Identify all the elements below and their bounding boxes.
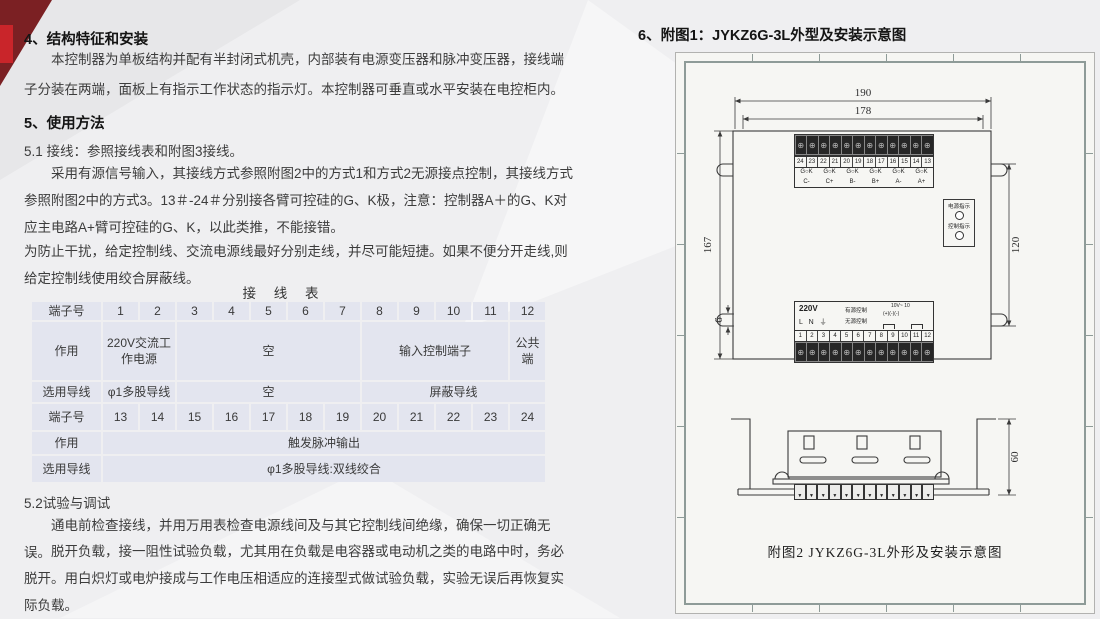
terminal-screw: ⊕ — [807, 136, 818, 154]
control-led-icon — [955, 231, 964, 240]
terminal-screw: ⊕ — [819, 343, 830, 361]
terminal-number-cell: 6 — [288, 302, 323, 320]
terminal-number: 9 — [888, 331, 900, 341]
terminal-screw: ⊕ — [819, 136, 830, 154]
terminal-number: 15 — [899, 157, 911, 167]
indicator-led-box: 电源指示 控制指示 — [943, 199, 975, 247]
top-terminal-numbers: 242322212019181716151413 — [794, 156, 934, 167]
terminal-number-cell: 17 — [251, 404, 286, 430]
terminal-number: 14 — [911, 157, 923, 167]
terminal-number-cell: 14 — [140, 404, 175, 430]
terminal-number: 6 — [853, 331, 865, 341]
terminal-tooth: ▼ — [922, 484, 934, 500]
side-view-terminal-teeth: ▼▼▼▼▼▼▼▼▼▼▼▼ — [794, 484, 934, 500]
bottom-terminal-strip: 220V L N ⏚ 有源控制 无源控制 10V~ 10 (+)(-)(-) 1… — [794, 301, 934, 363]
row-header-action: 作用 — [32, 322, 101, 380]
terminal-tooth: ▼ — [852, 484, 864, 500]
terminal-number: 1 — [795, 331, 807, 341]
gok-phase-label: G○K B- — [841, 168, 864, 187]
terminal-number: 5 — [841, 331, 853, 341]
terminal-screw: ⊕ — [853, 136, 864, 154]
cell-wire-type: φ1多股导线 — [103, 382, 175, 402]
dim-label-190: 190 — [833, 87, 893, 99]
terminal-screw: ⊕ — [911, 343, 922, 361]
gok-phase-label: G○K A- — [887, 168, 910, 187]
terminal-screw: ⊕ — [922, 343, 933, 361]
terminal-number-cell: 16 — [214, 404, 249, 430]
gate-cathode-labels: G○K C-G○K C+G○K B-G○K B+G○K A-G○K A+ — [794, 167, 934, 188]
bottom-terminal-numbers: 123456789101112 — [794, 330, 934, 341]
table-row-action-2: 作用 触发脉冲输出 — [32, 432, 545, 454]
terminal-screw: ⊕ — [888, 136, 899, 154]
terminal-screw: ⊕ — [876, 343, 887, 361]
terminal-number-cell: 3 — [177, 302, 212, 320]
terminal-screw: ⊕ — [842, 343, 853, 361]
terminal-tooth: ▼ — [817, 484, 829, 500]
polarity-note: (+)(-)(-) — [883, 311, 899, 317]
cell-empty: 空 — [177, 382, 360, 402]
cell-shielded-wire: 屏蔽导线 — [362, 382, 545, 402]
terminal-tooth: ▼ — [794, 484, 806, 500]
terminal-number-cell: 24 — [510, 404, 545, 430]
bottom-terminal-screws: ⊕⊕⊕⊕⊕⊕⊕⊕⊕⊕⊕⊕ — [794, 341, 934, 363]
terminal-number: 4 — [830, 331, 842, 341]
dim-label-120: 120 — [1010, 230, 1022, 260]
table-row-wire-2: 选用导线 φ1多股导线:双线绞合 — [32, 456, 545, 482]
table-row-terminals-1-12: 端子号 123456789101112 — [32, 302, 545, 320]
top-terminal-strip: ⊕⊕⊕⊕⊕⊕⊕⊕⊕⊕⊕⊕ 242322212019181716151413 G○… — [794, 134, 934, 188]
supply-voltage-label: 220V — [799, 304, 818, 313]
power-led-icon — [955, 211, 964, 220]
left-red-accent-bar — [0, 25, 13, 63]
cell-trigger-output: 触发脉冲输出 — [103, 432, 545, 454]
terminal-number-cell: 5 — [251, 302, 286, 320]
terminal-number: 10 — [899, 331, 911, 341]
table-row-action-1: 作用 220V交流工作电源 空 输入控制端子 公共端 — [32, 322, 545, 380]
terminal-tooth: ▼ — [887, 484, 899, 500]
terminal-number-cell: 11 — [473, 302, 508, 320]
wiring-table: 端子号 123456789101112 作用 220V交流工作电源 空 输入控制… — [30, 300, 547, 484]
section-6-heading: 6、附图1：JYKZ6G-3L外型及安装示意图 — [638, 24, 906, 45]
terminal-tooth: ▼ — [841, 484, 853, 500]
table-row-terminals-13-24: 端子号 131415161718192021222324 — [32, 404, 545, 430]
row-header-wire: 选用导线 — [32, 382, 101, 402]
terminal-screw: ⊕ — [922, 136, 933, 154]
terminal-screw: ⊕ — [853, 343, 864, 361]
terminal-screw: ⊕ — [796, 343, 807, 361]
row-header-action: 作用 — [32, 432, 101, 454]
terminal-number-cell: 1 — [103, 302, 138, 320]
terminal-number-cell: 19 — [325, 404, 360, 430]
gok-phase-label: G○K A+ — [910, 168, 933, 187]
terminal-number: 20 — [841, 157, 853, 167]
dim-label-60: 60 — [1009, 445, 1021, 469]
terminal-screw: ⊕ — [865, 343, 876, 361]
terminal-number-cell: 9 — [399, 302, 434, 320]
control-led-label: 控制指示 — [944, 222, 974, 230]
terminal-tooth: ▼ — [864, 484, 876, 500]
terminal-number-cell: 15 — [177, 404, 212, 430]
dim-label-178: 178 — [833, 105, 893, 117]
terminal-screw: ⊕ — [796, 136, 807, 154]
cell-input-control: 输入控制端子 — [362, 322, 508, 380]
terminal-number: 2 — [807, 331, 819, 341]
cell-empty: 空 — [177, 322, 360, 380]
terminal-number: 22 — [818, 157, 830, 167]
section-5-1-paragraph-1: 采用有源信号输入，其接线方式参照附图2中的方式1和方式2无源接点控制，其接线方式… — [24, 160, 576, 241]
dim-label-6: 6 — [713, 313, 725, 327]
voltage-note: 10V~ 10 — [891, 303, 910, 309]
drawing-sheet: 190 178 167 120 6 60 ⊕⊕⊕⊕⊕⊕⊕⊕⊕⊕⊕⊕ 242322… — [675, 52, 1095, 614]
section-4-paragraph: 本控制器为单板结构并配有半封闭式机壳，内部装有电源变压器和脉冲变压器，接线端子分… — [24, 45, 576, 105]
terminal-number: 16 — [888, 157, 900, 167]
terminal-tooth: ▼ — [829, 484, 841, 500]
terminal-number-cell: 4 — [214, 302, 249, 320]
bottom-strip-label-box: 220V L N ⏚ 有源控制 无源控制 10V~ 10 (+)(-)(-) — [794, 301, 934, 330]
table-row-wire-1: 选用导线 φ1多股导线 空 屏蔽导线 — [32, 382, 545, 402]
terminal-number: 23 — [807, 157, 819, 167]
terminal-number-cell: 21 — [399, 404, 434, 430]
row-header-wire: 选用导线 — [32, 456, 101, 482]
contact-symbol — [911, 324, 923, 329]
terminal-screw: ⊕ — [899, 136, 910, 154]
gok-phase-label: G○K C- — [795, 168, 818, 187]
top-terminal-screws: ⊕⊕⊕⊕⊕⊕⊕⊕⊕⊕⊕⊕ — [794, 134, 934, 156]
terminal-tooth: ▼ — [911, 484, 923, 500]
terminal-number: 21 — [830, 157, 842, 167]
gok-phase-label: G○K C+ — [818, 168, 841, 187]
power-led-label: 电源指示 — [944, 202, 974, 210]
cell-power-supply: 220V交流工作电源 — [103, 322, 175, 380]
terminal-number: 19 — [853, 157, 865, 167]
terminal-number: 13 — [922, 157, 933, 167]
terminal-number-cell: 22 — [436, 404, 471, 430]
terminal-tooth: ▼ — [899, 484, 911, 500]
terminal-number: 11 — [911, 331, 923, 341]
terminal-screw: ⊕ — [842, 136, 853, 154]
terminal-screw: ⊕ — [830, 343, 841, 361]
section-5-2-paragraph-2: 脱开负载，接一阻性试验负载，尤其用在负载是电容器或电动机之类的电路中时，务必脱开… — [24, 538, 576, 619]
terminal-screw: ⊕ — [888, 343, 899, 361]
terminal-number: 7 — [864, 331, 876, 341]
terminal-tooth: ▼ — [876, 484, 888, 500]
wiring-table-title: 接 线 表 — [24, 282, 544, 302]
terminal-screw: ⊕ — [807, 343, 818, 361]
passive-control-label: 无源控制 — [845, 317, 867, 325]
terminal-screw: ⊕ — [911, 136, 922, 154]
supply-pins-label: L N ⏚ — [799, 317, 829, 327]
terminal-screw: ⊕ — [830, 136, 841, 154]
terminal-number: 24 — [795, 157, 807, 167]
terminal-number-cell: 2 — [140, 302, 175, 320]
terminal-number-cell: 23 — [473, 404, 508, 430]
terminal-tooth: ▼ — [806, 484, 818, 500]
terminal-number: 8 — [876, 331, 888, 341]
terminal-number-cell: 8 — [362, 302, 397, 320]
row-header-terminal: 端子号 — [32, 302, 101, 320]
figure-caption: 附图2 JYKZ6G-3L外形及安装示意图 — [716, 541, 1054, 561]
active-control-label: 有源控制 — [845, 306, 867, 314]
terminal-number-cell: 20 — [362, 404, 397, 430]
terminal-number: 3 — [818, 331, 830, 341]
cell-twisted-wire: φ1多股导线:双线绞合 — [103, 456, 545, 482]
section-5-heading: 5、使用方法 — [24, 112, 105, 133]
terminal-number-cell: 13 — [103, 404, 138, 430]
terminal-number: 18 — [864, 157, 876, 167]
dim-label-167: 167 — [702, 230, 714, 260]
terminal-number: 17 — [876, 157, 888, 167]
terminal-number-cell: 18 — [288, 404, 323, 430]
terminal-screw: ⊕ — [876, 136, 887, 154]
contact-symbol — [883, 324, 895, 329]
gok-phase-label: G○K B+ — [864, 168, 887, 187]
row-header-terminal: 端子号 — [32, 404, 101, 430]
terminal-screw: ⊕ — [865, 136, 876, 154]
terminal-screw: ⊕ — [899, 343, 910, 361]
cell-common-terminal: 公共端 — [510, 322, 545, 380]
terminal-number-cell: 12 — [510, 302, 545, 320]
left-text-column: 4、结构特征和安装 本控制器为单板结构并配有半封闭式机壳，内部装有电源变压器和脉… — [24, 0, 580, 618]
terminal-number-cell: 10 — [436, 302, 471, 320]
terminal-number-cell: 7 — [325, 302, 360, 320]
terminal-number: 12 — [922, 331, 933, 341]
